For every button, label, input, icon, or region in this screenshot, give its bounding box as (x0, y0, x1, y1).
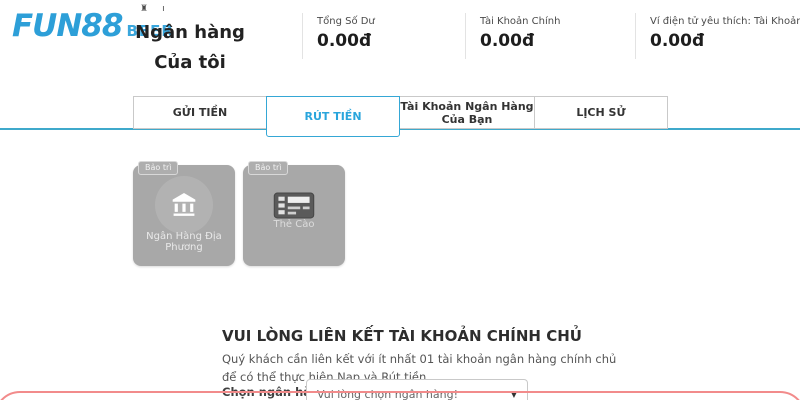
tab-deposit[interactable]: GỬI TIỀN (133, 96, 267, 129)
chevron-down-icon: ▼ (511, 390, 517, 399)
logo-text: FUN88 (12, 8, 122, 44)
method-card-local-bank[interactable]: Bảo trì Ngân Hàng Địa Phương (133, 165, 235, 266)
tab-withdraw[interactable]: RÚT TIỀN (266, 96, 400, 137)
stat-value: 0.00đ (317, 31, 375, 51)
maintenance-badge: Bảo trì (138, 161, 178, 175)
tab-your-bank-accounts[interactable]: Tài Khoản Ngân Hàng Của Bạn (399, 96, 535, 129)
method-card-scratch-card[interactable]: Bảo trì Thẻ Cào (243, 165, 345, 266)
stat-value: 0.00đ (480, 31, 560, 51)
bank-select-placeholder: Vui lòng chọn ngân hàng! (317, 388, 458, 400)
stat-value: 0.00đ (650, 31, 800, 51)
link-account-heading: VUI LÒNG LIÊN KẾT TÀI KHOẢN CHÍNH CHỦ (222, 327, 582, 345)
my-bank-page: FUN88BEER ♜ı Ngân hàng Của tôi Tổng Số D… (0, 0, 800, 400)
logo-ornament-icon: ♜ı (140, 4, 179, 14)
scratch-card-icon (273, 192, 315, 219)
stat-label: Tài Khoản Chính (480, 16, 560, 27)
stat-main-account: Tài Khoản Chính 0.00đ (465, 13, 560, 59)
page-title: Ngân hàng Của tôi (115, 18, 265, 78)
stat-favorite-ewallet: Ví điện tử yêu thích: Tài Khoản Chính 0.… (635, 13, 800, 59)
stat-total-balance: Tổng Số Dư 0.00đ (302, 13, 375, 59)
tab-history[interactable]: LỊCH SỬ (534, 96, 668, 129)
bank-icon (168, 189, 200, 221)
maintenance-badge: Bảo trì (248, 161, 288, 175)
page-title-line2: Của tôi (115, 48, 265, 78)
stat-label: Ví điện tử yêu thích: Tài Khoản Chính (650, 16, 800, 27)
stat-label: Tổng Số Dư (317, 16, 375, 27)
method-label: Thẻ Cào (243, 219, 345, 230)
method-label: Ngân Hàng Địa Phương (133, 231, 235, 253)
bank-select[interactable]: Vui lòng chọn ngân hàng! ▼ (306, 379, 528, 400)
page-title-line1: Ngân hàng (115, 18, 265, 48)
